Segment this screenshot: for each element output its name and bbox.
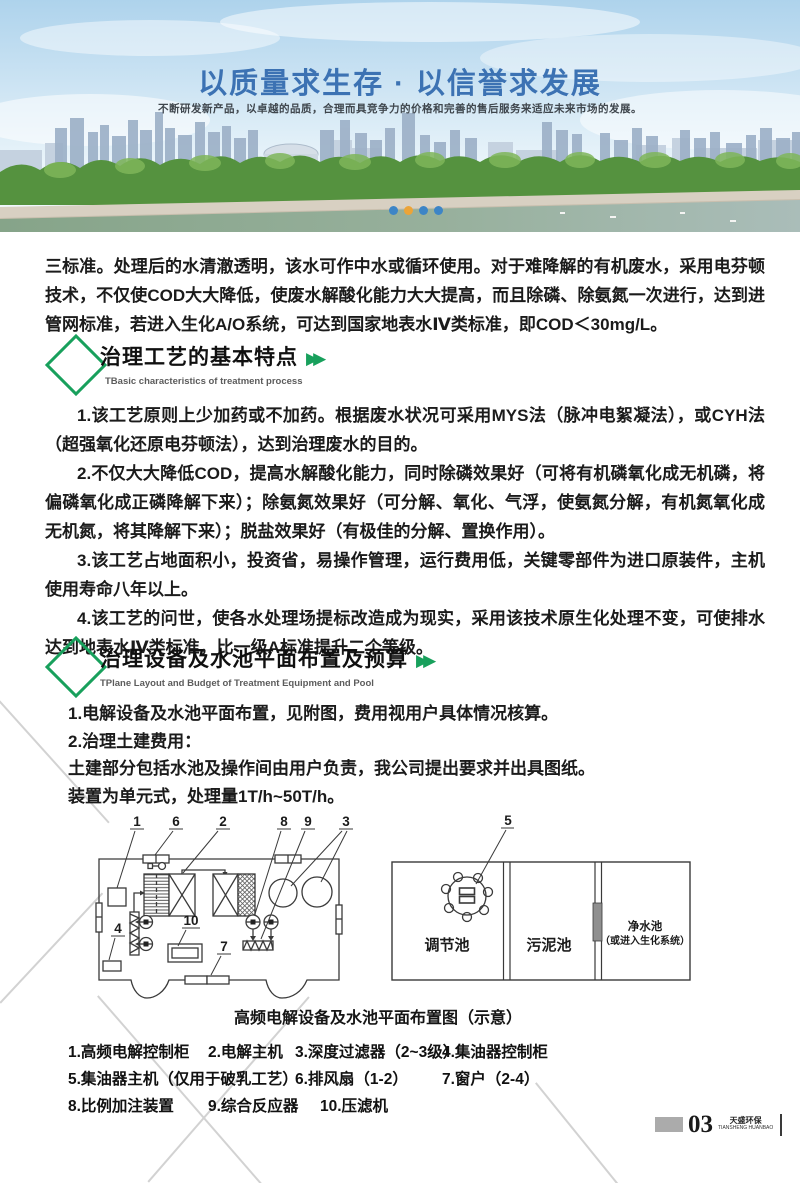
hero-slogan: 以质量求生存 · 以信誉求发展	[0, 60, 800, 102]
brochure-page: 以质量求生存 · 以信誉求发展 不断研发新产品，以卓越的品质，合理而具竞争力的价…	[0, 0, 800, 1183]
carousel-dot[interactable]	[389, 206, 398, 215]
equipment-layout-diagram: 1 6 2 8 9 3 4 10 7	[85, 800, 355, 1000]
layout-budget-lines: 1.电解设备及水池平面布置，见附图，费用视用户具体情况核算。 2.治理土建费用：…	[68, 700, 768, 810]
diagram-caption: 高频电解设备及水池平面布置图（示意）	[78, 1004, 678, 1028]
callout-5: 5	[504, 813, 512, 828]
hero-subtitle: 不断研发新产品，以卓越的品质，合理而具竞争力的价格和完善的售后服务来适应未来市场…	[0, 101, 800, 116]
pool-label-sludge: 污泥池	[526, 936, 571, 954]
pool-label-regulating: 调节池	[424, 936, 469, 954]
legend-item-10: 10.压滤机	[320, 1094, 388, 1116]
diamond-icon	[45, 636, 107, 698]
city-lake-photo	[0, 0, 800, 232]
callout-3: 3	[342, 814, 350, 829]
callout-7: 7	[220, 939, 228, 954]
carousel-dots	[389, 206, 443, 215]
line-3: 土建部分包括水池及操作间由用户负责，我公司提出要求并出具图纸。	[68, 755, 768, 783]
callout-9: 9	[304, 814, 312, 829]
filter-press-symbol	[168, 944, 202, 962]
legend-item-7: 7.窗户（2-4）	[442, 1067, 539, 1089]
line-2: 2.治理土建费用：	[68, 728, 768, 756]
legend-item-9: 9.综合反应器	[208, 1094, 298, 1116]
legend-item-4: 4.集油器控制柜	[442, 1040, 548, 1062]
carousel-dot-active[interactable]	[404, 206, 413, 215]
section-title: 治理工艺的基本特点▶▶	[100, 341, 320, 371]
oil-cabinet-symbol	[103, 961, 121, 971]
filter-symbol	[269, 879, 297, 907]
hero-banner: 以质量求生存 · 以信誉求发展 不断研发新产品，以卓越的品质，合理而具竞争力的价…	[0, 0, 800, 232]
double-arrow-icon: ▶▶	[306, 349, 320, 368]
carousel-dot[interactable]	[419, 206, 428, 215]
section-title-text: 治理工艺的基本特点	[100, 346, 298, 369]
carousel-dot[interactable]	[434, 206, 443, 215]
callout-10: 10	[183, 913, 198, 928]
reactor-symbol	[243, 941, 273, 950]
page-footer: 03 天盛环保 TIANSHENG HUANBAO	[655, 1112, 782, 1137]
paragraph-text: 三标准。处理后的水清澈透明，该水可作中水或循环使用。对于难降解的有机废水，采用电…	[45, 252, 765, 339]
brand-name-en: TIANSHENG HUANBAO	[718, 1126, 773, 1132]
page-number: 03	[688, 1112, 713, 1137]
feature-1: 1.该工艺原则上少加药或不加药。根据废水状况可采用MYS法（脉冲电絮凝法），或C…	[45, 401, 765, 459]
pool-label-biochemical: （或进入生化系统）	[600, 934, 690, 947]
callout-2: 2	[219, 814, 227, 829]
section-subtitle-en: TBasic characteristics of treatment proc…	[105, 376, 302, 387]
diamond-icon	[45, 334, 107, 396]
pool-label-clean-water: 净水池	[628, 919, 663, 933]
callout-6: 6	[172, 814, 180, 829]
legend-item-2: 2.电解主机	[208, 1040, 283, 1062]
callout-1: 1	[133, 814, 141, 829]
section-title: 治理设备及水池平面布置及预算▶▶	[100, 643, 430, 673]
legend-item-1: 1.高频电解控制柜	[68, 1040, 189, 1062]
double-arrow-icon: ▶▶	[416, 651, 430, 670]
section-header-layout-budget: 治理设备及水池平面布置及预算▶▶ TPlane Layout and Budge…	[40, 638, 760, 700]
legend-item-8: 8.比例加注装置	[68, 1094, 174, 1116]
pool-layout-diagram: 5 调节池 污泥池 净水池 （或进入生化系统）	[380, 800, 700, 990]
section-header-process-features: 治理工艺的基本特点▶▶ TBasic characteristics of tr…	[40, 336, 760, 398]
control-cabinet-symbol	[108, 888, 126, 906]
electrolysis-unit-symbol	[144, 863, 255, 917]
feature-paragraphs: 1.该工艺原则上少加药或不加药。根据废水状况可采用MYS法（脉冲电絮凝法），或C…	[45, 401, 765, 662]
filter-symbol	[302, 877, 332, 907]
brand-mark: 天盛环保 TIANSHENG HUANBAO	[718, 1117, 773, 1131]
line-1: 1.电解设备及水池平面布置，见附图，费用视用户具体情况核算。	[68, 700, 768, 728]
footer-divider	[780, 1114, 782, 1136]
section-subtitle-en: TPlane Layout and Budget of Treatment Eq…	[100, 678, 374, 689]
watermark-line	[535, 1082, 631, 1183]
feature-3: 3.该工艺占地面积小，投资省，易操作管理，运行费用低，关键零部件为进口原装件，主…	[45, 546, 765, 604]
intro-paragraph: 三标准。处理后的水清澈透明，该水可作中水或循环使用。对于难降解的有机废水，采用电…	[45, 252, 765, 339]
legend-item-5: 5.集油器主机（仅用于破乳工艺）	[68, 1067, 298, 1089]
section-title-text: 治理设备及水池平面布置及预算	[100, 648, 408, 671]
legend-item-3: 3.深度过滤器（2~3级）	[295, 1040, 458, 1062]
aerator-symbol	[442, 873, 493, 922]
legend-item-6: 6.排风扇（1-2）	[295, 1067, 408, 1089]
callout-8: 8	[280, 814, 288, 829]
feature-2: 2.不仅大大降低COD，提高水解酸化能力，同时除磷效果好（可将有机磷氧化成无机磷…	[45, 459, 765, 546]
callout-4: 4	[114, 921, 122, 936]
footer-square-icon	[655, 1117, 683, 1132]
